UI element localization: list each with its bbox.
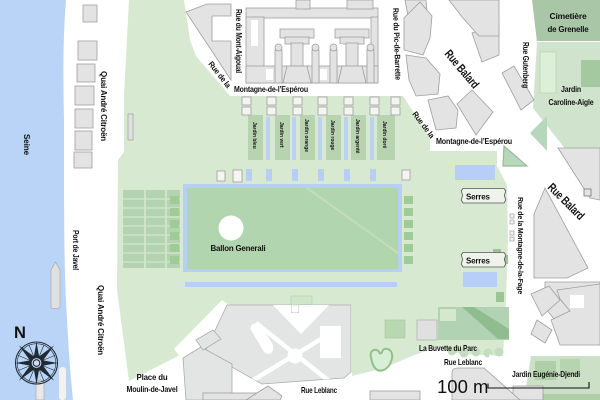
svg-text:Seine: Seine xyxy=(22,134,32,155)
svg-text:Rue du Mont-Aigoual: Rue du Mont-Aigoual xyxy=(234,9,243,73)
svg-text:Jardin Eugénie-Djendi: Jardin Eugénie-Djendi xyxy=(512,369,580,379)
svg-text:Place du: Place du xyxy=(137,372,168,382)
svg-text:Quai André Citroën: Quai André Citroën xyxy=(96,285,106,355)
svg-text:Jardin bleu: Jardin bleu xyxy=(251,122,257,149)
svg-text:Caroline-Aigle: Caroline-Aigle xyxy=(549,97,594,107)
svg-text:La Buvette du Parc: La Buvette du Parc xyxy=(419,343,477,353)
svg-text:Serres: Serres xyxy=(466,257,490,266)
svg-text:Serres: Serres xyxy=(466,193,490,202)
svg-text:Jardin doré: Jardin doré xyxy=(381,121,387,148)
svg-text:100 m: 100 m xyxy=(437,376,488,397)
svg-text:Rue de la Montagne-de-la-Fage: Rue de la Montagne-de-la-Fage xyxy=(516,197,525,294)
svg-text:Ballon Generali: Ballon Generali xyxy=(211,243,266,253)
svg-text:Quai André Citroën: Quai André Citroën xyxy=(99,71,109,141)
svg-text:Rue Leblanc: Rue Leblanc xyxy=(444,357,482,367)
svg-text:Rue Gutenberg: Rue Gutenberg xyxy=(521,42,530,88)
svg-text:Montagne-de-l’Espérou: Montagne-de-l’Espérou xyxy=(436,136,512,146)
svg-text:N: N xyxy=(14,324,26,342)
svg-text:Jardin vert: Jardin vert xyxy=(278,122,284,148)
svg-text:Port de Javel: Port de Javel xyxy=(71,230,80,270)
svg-text:Cimetière: Cimetière xyxy=(550,11,587,21)
svg-text:Montagne-de-l’Espérou: Montagne-de-l’Espérou xyxy=(234,84,308,94)
svg-text:Moulin-de-Javel: Moulin-de-Javel xyxy=(127,384,178,394)
svg-text:Jardin orange: Jardin orange xyxy=(303,119,309,152)
svg-text:Jardin rouge: Jardin rouge xyxy=(329,120,335,151)
svg-text:Jardin argenté: Jardin argenté xyxy=(354,119,360,154)
svg-text:de Grenelle: de Grenelle xyxy=(548,24,589,34)
svg-text:Rue Leblanc: Rue Leblanc xyxy=(301,385,337,395)
svg-text:Jardin: Jardin xyxy=(561,84,581,94)
